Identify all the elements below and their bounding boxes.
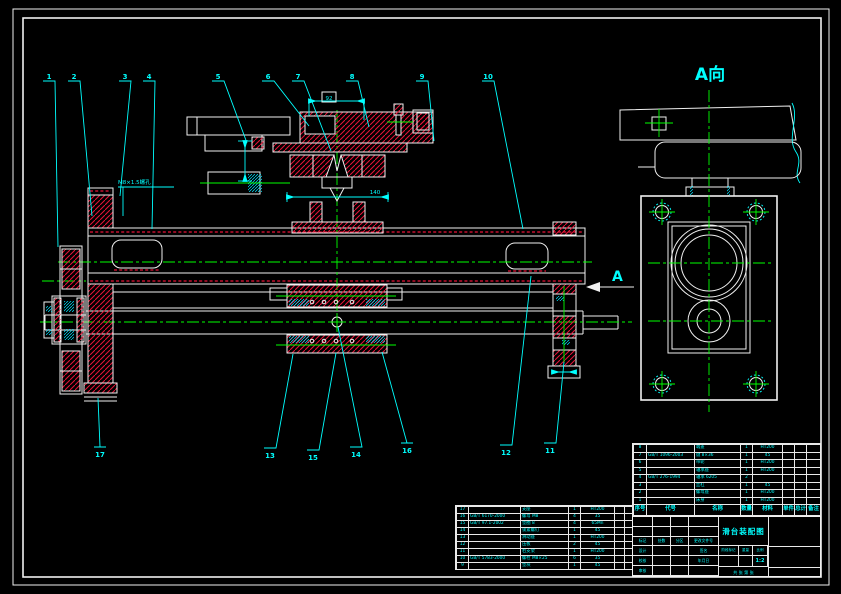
bom-header-mtl: 材料 (752, 504, 782, 515)
bom-note (806, 459, 820, 467)
balloon-5: 5 (212, 73, 247, 143)
tb-design: 设计 (633, 546, 653, 556)
bom-mtl: HT200 (752, 444, 782, 452)
bom-header-unit: 单件 (782, 504, 794, 515)
svg-text:14: 14 (351, 451, 361, 459)
bom-mtl (752, 474, 782, 482)
balloon-17: 17 (94, 398, 106, 459)
svg-text:11: 11 (545, 447, 555, 455)
bom-name: 垫块 (520, 562, 568, 569)
stage-label: 阶段标记 (719, 546, 739, 556)
corner-hole-br (743, 371, 769, 397)
bom-mtl: 45 (580, 562, 614, 569)
bom-name: 支座 (520, 506, 568, 513)
bom-code (646, 459, 694, 467)
bom-no: 11 (456, 548, 468, 555)
bom-qty: 1 (740, 459, 752, 467)
bom-qty: 2 (740, 474, 752, 482)
bom-note (806, 489, 820, 497)
corner-hole-bl (649, 371, 675, 397)
bom-name: 右支架 (520, 548, 568, 555)
weight-label: 重量 (739, 546, 753, 556)
balloons-top: 1 2 3 4 5 6 7 8 9 10 (43, 73, 523, 247)
bom-mtl: 45 (752, 482, 782, 490)
tb-check: 校核 (633, 556, 653, 566)
bom-table-left: 17支座1HT200 16GB/T 6170-2000螺母 M8435 15GB… (455, 505, 633, 570)
bom-qty: 1 (740, 452, 752, 460)
balloon-4: 4 (143, 73, 155, 229)
scale-label: 比例 (753, 546, 768, 556)
svg-text:4: 4 (147, 73, 152, 81)
bom-code: GB/T 97.1-2002 (468, 520, 520, 527)
bom-mtl: 35 (580, 555, 614, 562)
balloon-3: 3 (119, 73, 131, 196)
bom-header-code: 代号 (646, 504, 694, 515)
bom-mtl: 65Mn (580, 520, 614, 527)
title-block: 标记处数分区更改文件号 设计签名 校核年月日 审核 滑台装配图 阶段标记 重量 … (632, 516, 821, 577)
main-assembly-view: 92 140 M8×1.5螺孔 A 1 2 3 4 5 6 7 (40, 73, 634, 462)
tb-count: 处数 (653, 537, 671, 547)
tb-date: 年月日 (689, 556, 719, 566)
bom-note (806, 444, 820, 452)
svg-text:7: 7 (296, 73, 301, 81)
title-block-center: 滑台装配图 阶段标记 重量 比例 1:2 共 张 第 张 (719, 517, 769, 576)
bom-no: 2 (633, 489, 646, 497)
bom-mtl: HT200 (752, 497, 782, 505)
bom-qty: 2 (568, 541, 580, 548)
bom-qty: 4 (568, 513, 580, 520)
bom-mtl: HT200 (580, 548, 614, 555)
svg-text:13: 13 (265, 452, 275, 460)
bom-code (468, 541, 520, 548)
right-support (548, 222, 580, 378)
bom-qty: 1 (568, 548, 580, 555)
bom-header-total: 总计 (794, 504, 806, 515)
bom-no: 5 (633, 467, 646, 475)
svg-text:8: 8 (350, 73, 355, 81)
svg-text:3: 3 (123, 73, 128, 81)
bom-code: GB/T 276-1994 (646, 474, 694, 482)
a-direction-view: A向 (620, 64, 801, 412)
bom-no: 13 (456, 534, 468, 541)
view-direction-arrow: A (586, 269, 634, 292)
bom-code (468, 527, 520, 534)
bom-no: 8 (633, 444, 646, 452)
bom-name: 轴承 6205 (694, 474, 740, 482)
bom-no: 4 (633, 474, 646, 482)
bom-qty: 1 (568, 562, 580, 569)
balloon-15: 15 (307, 353, 336, 462)
bom-no: 14 (456, 527, 468, 534)
balloon-11: 11 (544, 362, 564, 455)
bom-code (468, 548, 520, 555)
bom-name: 螺母 M8 (520, 513, 568, 520)
view-label: A向 (695, 64, 725, 85)
bom-mtl: 45 (580, 541, 614, 548)
bom-name: 床身 (694, 497, 740, 505)
bom-no: 6 (633, 459, 646, 467)
tb-mark: 标记 (633, 537, 653, 547)
bom-mtl: 45 (752, 452, 782, 460)
corner-hole-tl (649, 199, 675, 225)
svg-text:17: 17 (95, 451, 105, 459)
bom-header-qty: 数量 (740, 504, 752, 515)
svg-text:1: 1 (47, 73, 52, 81)
tb-docno: 更改文件号 (689, 537, 719, 547)
bom-mtl: 45 (580, 527, 614, 534)
bom-note (806, 482, 820, 490)
balloon-13: 13 (264, 354, 293, 460)
bom-table-right: 8端盖1HT200 7GB/T 1096-2003键 8×36145 6带轮1H… (632, 443, 821, 516)
balloon-12: 12 (500, 276, 531, 457)
bom-no: 7 (633, 452, 646, 460)
bom-qty: 6 (568, 555, 580, 562)
balloon-1: 1 (43, 73, 58, 247)
slide-mechanism (187, 104, 433, 233)
bom-mtl: HT200 (752, 489, 782, 497)
bom-mtl: 35 (580, 513, 614, 520)
title-block-right (769, 517, 820, 576)
svg-text:12: 12 (501, 449, 511, 457)
tb-sign: 签名 (689, 546, 719, 556)
bom-qty: 1 (740, 467, 752, 475)
bom-no: 10 (456, 555, 468, 562)
cad-drawing-canvas: 92 140 M8×1.5螺孔 A 1 2 3 4 5 6 7 (0, 0, 841, 594)
direction-letter: A (612, 269, 623, 285)
bom-mtl: HT200 (580, 534, 614, 541)
bom-header-no: 序号 (633, 504, 646, 515)
sheet-count: 共 张 第 张 (719, 567, 768, 578)
bom-no: 1 (633, 497, 646, 505)
lead-screw-shaft (45, 311, 618, 334)
bom-name: 轴承座 (694, 467, 740, 475)
svg-text:2: 2 (72, 73, 77, 81)
bom-code (646, 467, 694, 475)
svg-text:6: 6 (266, 73, 271, 81)
bom-name: 垫圈 8 (520, 520, 568, 527)
bom-no: 16 (456, 513, 468, 520)
corner-hole-tr (743, 199, 769, 225)
center-bearing-block (270, 285, 402, 353)
bom-code (468, 534, 520, 541)
bom-name: 压板 (520, 541, 568, 548)
balloon-16: 16 (382, 352, 413, 455)
bom-code (646, 497, 694, 505)
svg-text:5: 5 (216, 73, 221, 81)
svg-text:10: 10 (483, 73, 493, 81)
tb-zone: 分区 (671, 537, 689, 547)
bom-code: GB/T 5783-2000 (468, 555, 520, 562)
bom-name: 螺母座 (694, 489, 740, 497)
bom-note (806, 497, 820, 505)
bom-code (646, 444, 694, 452)
bom-note (806, 474, 820, 482)
bom-code (468, 562, 520, 569)
bom-qty: 1 (740, 482, 752, 490)
bom-no: 9 (456, 562, 468, 569)
bom-code (646, 489, 694, 497)
bom-qty: 1 (740, 444, 752, 452)
drawing-title: 滑台装配图 (719, 517, 768, 546)
bom-no: 17 (456, 506, 468, 513)
bom-qty: 1 (568, 534, 580, 541)
bom-name: 锁紧螺钉 (520, 527, 568, 534)
dim-top-value: 92 (326, 96, 333, 102)
left-support-and-pulley (44, 188, 117, 401)
bom-qty: 1 (740, 489, 752, 497)
bom-header-note: 备注 (806, 504, 820, 515)
bom-mtl: HT200 (752, 467, 782, 475)
bom-code: GB/T 6170-2000 (468, 513, 520, 520)
dimensions: 92 140 M8×1.5螺孔 (118, 92, 388, 216)
bom-no: 3 (633, 482, 646, 490)
svg-text:9: 9 (420, 73, 425, 81)
bom-qty: 1 (568, 506, 580, 513)
title-block-revision-grid: 标记处数分区更改文件号 设计签名 校核年月日 审核 (633, 517, 719, 576)
svg-text:16: 16 (402, 447, 412, 455)
bom-mtl: HT200 (752, 459, 782, 467)
bom-header-name: 名称 (694, 504, 740, 515)
bom-name: 丝杠 (694, 482, 740, 490)
bom-name: 端盖 (694, 444, 740, 452)
bom-note (806, 452, 820, 460)
bom-qty: 4 (568, 520, 580, 527)
bom-name: 螺栓 M8×25 (520, 555, 568, 562)
bom-no: 12 (456, 541, 468, 548)
bom-code (646, 482, 694, 490)
bom-code: GB/T 1096-2003 (646, 452, 694, 460)
bom-name: 滑动座 (520, 534, 568, 541)
svg-text:15: 15 (308, 454, 318, 462)
bom-qty: 1 (568, 527, 580, 534)
bom-mtl: HT200 (580, 506, 614, 513)
bom-no: 15 (456, 520, 468, 527)
tb-audit: 审核 (633, 566, 653, 576)
bom-name: 键 8×36 (694, 452, 740, 460)
bom-qty: 1 (740, 497, 752, 505)
balloon-10: 10 (482, 73, 523, 229)
scale-value: 1:2 (753, 556, 768, 567)
thread-callout-label: M8×1.5螺孔 (118, 178, 151, 186)
bom-name: 带轮 (694, 459, 740, 467)
bom-code (468, 506, 520, 513)
bom-note (806, 467, 820, 475)
dim-bottom-value: 140 (370, 190, 381, 196)
